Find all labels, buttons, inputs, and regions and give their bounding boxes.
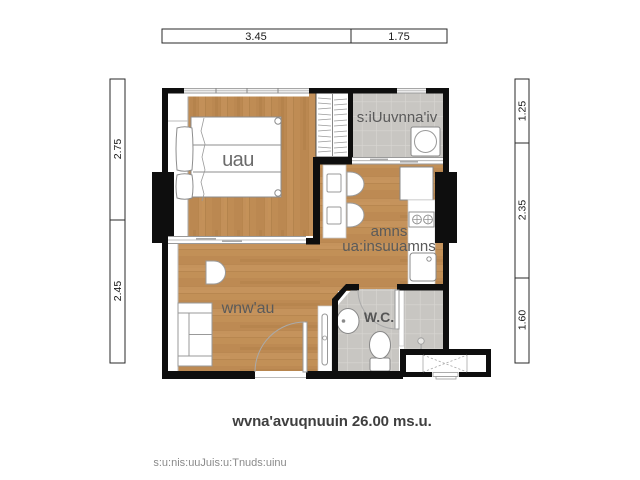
svg-text:s:iUuvnna'iv: s:iUuvnna'iv (357, 109, 438, 126)
svg-text:wvna'avuqnuuin 26.00 ms.u.: wvna'avuqnuuin 26.00 ms.u. (231, 413, 431, 430)
svg-text:1.60: 1.60 (517, 310, 529, 331)
svg-text:2.75: 2.75 (112, 139, 124, 160)
svg-text:uau: uau (222, 149, 254, 171)
svg-text:1.25: 1.25 (517, 101, 529, 122)
svg-text:s:u:nis:uuJuis:u:Tnuds:uinu: s:u:nis:uuJuis:u:Tnuds:uinu (153, 457, 286, 469)
svg-text:2.35: 2.35 (517, 200, 529, 221)
svg-text:wnw'au: wnw'au (221, 300, 275, 317)
svg-text:3.45: 3.45 (245, 31, 266, 43)
svg-text:W.C.: W.C. (364, 309, 394, 325)
svg-text:ua:insuuamns: ua:insuuamns (342, 238, 435, 255)
svg-text:2.45: 2.45 (112, 281, 124, 302)
svg-text:1.75: 1.75 (388, 31, 409, 43)
